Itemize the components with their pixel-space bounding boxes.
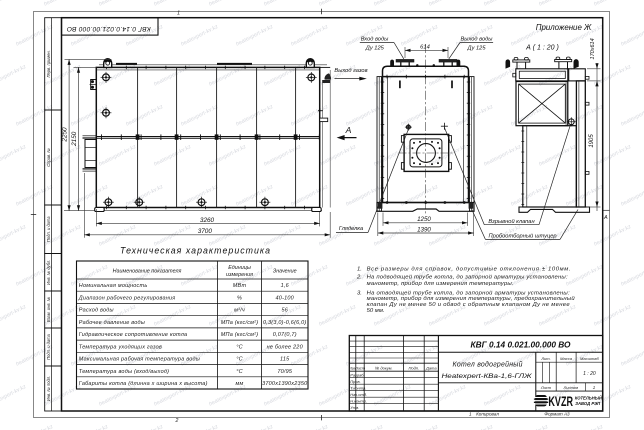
svg-text:0,3(3,0)-0,6(6,0): 0,3(3,0)-0,6(6,0) <box>263 320 306 326</box>
svg-text:манометр, прибор для измерения: манометр, прибор для измерения температу… <box>367 281 514 287</box>
svg-text:Пров.: Пров. <box>350 379 361 384</box>
svg-text:Лист: Лист <box>354 366 366 371</box>
svg-text:2150: 2150 <box>71 131 78 147</box>
svg-text:Все размеры для справок, допус: Все размеры для справок, допустимые откл… <box>367 267 571 273</box>
svg-text:Расход воды: Расход воды <box>79 308 114 314</box>
svg-text:Техническая характеристика: Техническая характеристика <box>120 246 270 256</box>
svg-text:Температура воды (вход/выход): Температура воды (вход/выход) <box>79 369 169 375</box>
svg-text:°С: °С <box>236 344 243 350</box>
svg-text:Максимальная рабочая температу: Максимальная рабочая температура воды <box>79 357 200 363</box>
svg-text:2: 2 <box>175 418 179 424</box>
svg-text:мм: мм <box>236 381 244 387</box>
svg-text:Перв. примен.: Перв. примен. <box>46 50 51 77</box>
svg-text:Масштаб: Масштаб <box>580 356 599 361</box>
svg-text:ЗАВОД РЭП: ЗАВОД РЭП <box>575 401 601 406</box>
svg-text:Копировал: Копировал <box>476 412 499 417</box>
svg-text:Утв.: Утв. <box>350 405 359 410</box>
svg-text:№ докум.: № докум. <box>375 366 393 371</box>
svg-text:%: % <box>237 295 242 301</box>
svg-text:°С: °С <box>236 357 243 363</box>
svg-text:КВГ 0.14 0.021.00.000 ВО: КВГ 0.14 0.021.00.000 ВО <box>471 340 572 349</box>
svg-text:А: А <box>345 125 352 135</box>
svg-text:40-100: 40-100 <box>276 295 295 301</box>
svg-text:Взрывной клапан: Взрывной клапан <box>488 218 535 225</box>
svg-text:0,07(0,7): 0,07(0,7) <box>273 332 297 338</box>
svg-text:Рабочее давление воды: Рабочее давление воды <box>79 320 145 326</box>
svg-text:Взам. инв. №: Взам. инв. № <box>46 296 51 322</box>
svg-text:Масса: Масса <box>560 356 573 361</box>
svg-text:2250: 2250 <box>61 127 68 143</box>
svg-text:Heatexpert-КВа-1,6-ГЛЖ: Heatexpert-КВа-1,6-ГЛЖ <box>442 373 533 380</box>
svg-text:Габариты котла (длинна х ширин: Габариты котла (длинна х ширина х высота… <box>79 381 208 387</box>
svg-text:Нач.отд.: Нач.отд. <box>350 392 367 397</box>
svg-text:А ( 1 : 20 ): А ( 1 : 20 ) <box>525 44 559 51</box>
svg-text:1: 1 <box>469 412 472 417</box>
svg-text:Значение: Значение <box>273 268 297 274</box>
svg-text:56: 56 <box>281 308 288 314</box>
svg-text:3700х1390х2350: 3700х1390х2350 <box>262 381 308 387</box>
svg-text:Листов: Листов <box>563 385 579 390</box>
svg-text:1390: 1390 <box>417 226 431 233</box>
svg-text:Лит.: Лит. <box>540 356 550 361</box>
svg-text:115: 115 <box>280 357 290 363</box>
svg-text:1: 1 <box>177 11 180 17</box>
svg-text:1905: 1905 <box>589 134 595 148</box>
svg-text:Гидравлическое сопротивление к: Гидравлическое сопротивление котла <box>79 332 188 338</box>
svg-text:614: 614 <box>420 44 430 50</box>
svg-text:Т.контр.: Т.контр. <box>350 386 366 391</box>
svg-text:Номинальная мощность: Номинальная мощность <box>79 283 148 289</box>
svg-text:А: А <box>603 215 608 221</box>
svg-text:клапан Ду не менее 50 и обвод: клапан Ду не менее 50 и обвод с обратным… <box>367 302 571 308</box>
svg-text:KVZR: KVZR <box>548 394 573 409</box>
svg-text:МВт: МВт <box>233 283 247 289</box>
svg-text:Формат А3: Формат А3 <box>544 412 570 417</box>
svg-text:3700: 3700 <box>198 228 213 235</box>
svg-text:Температура уходящих газов: Температура уходящих газов <box>79 344 162 350</box>
svg-text:не более 220: не более 220 <box>267 344 304 350</box>
svg-text:70/95: 70/95 <box>277 369 293 375</box>
svg-text:м³/ч: м³/ч <box>234 308 245 314</box>
svg-text:Разраб.: Разраб. <box>350 373 364 378</box>
svg-text:2.: 2. <box>356 275 362 281</box>
svg-text:Инв. № дубл.: Инв. № дубл. <box>46 260 51 285</box>
svg-text:Н.контр.: Н.контр. <box>350 399 367 404</box>
svg-text:1,6: 1,6 <box>281 283 290 289</box>
svg-text:МПа (кгс/см²): МПа (кгс/см²) <box>221 332 259 338</box>
svg-text:1.: 1. <box>357 267 362 273</box>
svg-text:Подп. и дата: Подп. и дата <box>46 216 51 242</box>
svg-text:Ду 125: Ду 125 <box>467 45 487 51</box>
svg-text:Подп.: Подп. <box>408 366 419 371</box>
svg-text:Лист: Лист <box>540 385 552 390</box>
svg-text:170х614: 170х614 <box>590 38 596 59</box>
svg-text:Выход газов: Выход газов <box>334 68 367 74</box>
svg-text:50 мм.: 50 мм. <box>367 308 385 314</box>
svg-text:КВГ 0.14.0.021.00.000 ВО: КВГ 0.14.0.021.00.000 ВО <box>67 25 151 32</box>
svg-text:Ду 125: Ду 125 <box>365 45 385 51</box>
svg-text:Вход воды: Вход воды <box>361 37 389 43</box>
svg-text:МПа (кгс/см²): МПа (кгс/см²) <box>221 320 259 326</box>
svg-text:Диапазон рабочего регулировани: Диапазон рабочего регулирования <box>78 295 176 301</box>
svg-text:Приложение Ж: Приложение Ж <box>536 23 592 32</box>
svg-text:1 : 20: 1 : 20 <box>583 371 596 377</box>
svg-text:3.: 3. <box>357 290 362 296</box>
svg-text:Пробоотборный штуцер: Пробоотборный штуцер <box>488 233 556 240</box>
svg-text:Котел водогрейный: Котел водогрейный <box>453 361 523 369</box>
svg-text:Наименование показателя: Наименование показателя <box>113 268 182 274</box>
svg-text:Справ. №: Справ. № <box>46 148 51 167</box>
svg-text:Гляделка: Гляделка <box>339 226 363 232</box>
svg-text:Единицы: Единицы <box>228 265 251 271</box>
svg-text:3260: 3260 <box>200 217 215 224</box>
svg-text:Инв. № подл.: Инв. № подл. <box>46 376 51 401</box>
svg-text:°С: °С <box>236 369 243 375</box>
svg-text:Выход воды: Выход воды <box>461 37 494 43</box>
svg-text:На подводящей трубе котла, до: На подводящей трубе котла, до запорной а… <box>367 274 568 281</box>
svg-text:Дата: Дата <box>425 366 437 371</box>
svg-text:Подп. и дата: Подп. и дата <box>46 333 51 359</box>
svg-text:1250: 1250 <box>417 216 431 223</box>
svg-text:измерения: измерения <box>226 272 253 278</box>
